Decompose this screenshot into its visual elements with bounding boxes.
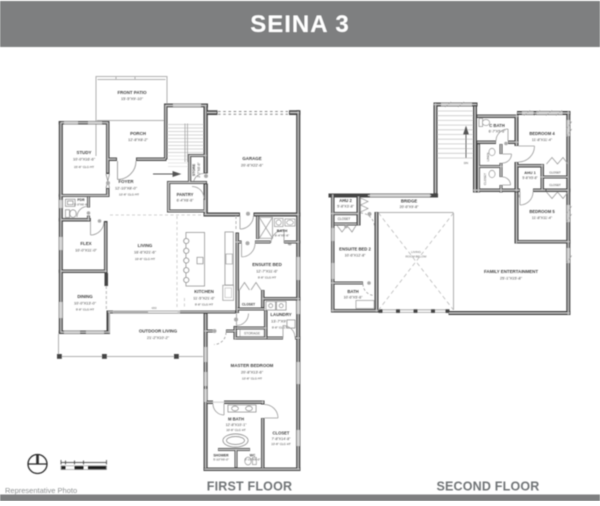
svg-text:AHU 2: AHU 2 [339, 198, 352, 203]
svg-text:19'-8" CLG HT: 19'-8" CLG HT [135, 257, 155, 261]
svg-text:25'-1"X15'-8": 25'-1"X15'-8" [500, 277, 523, 281]
svg-text:LAUNDRY: LAUNDRY [270, 312, 291, 317]
svg-text:LIVING: LIVING [138, 243, 153, 248]
svg-text:11'-8"X11'-4": 11'-8"X11'-4" [532, 138, 553, 142]
svg-text:10'-0"X13'-0": 10'-0"X13'-0" [74, 302, 97, 306]
svg-text:5'-8"X5'-8": 5'-8"X5'-8" [522, 176, 538, 180]
svg-text:7'-8"X14'-8": 7'-8"X14'-8" [272, 437, 291, 441]
svg-text:PANTRY: PANTRY [177, 192, 194, 197]
svg-text:12'-8"X8'-2": 12'-8"X8'-2" [128, 138, 148, 142]
svg-text:20'-6"X22'-6": 20'-6"X22'-6" [241, 164, 264, 168]
svg-text:ROOM BELOW: ROOM BELOW [405, 255, 426, 259]
svg-text:10'-0"X11'-0": 10'-0"X11'-0" [75, 249, 97, 253]
svg-text:DN: DN [464, 161, 468, 165]
svg-text:C BATH: C BATH [489, 123, 505, 128]
svg-text:10'-8" CLG HT: 10'-8" CLG HT [226, 428, 246, 432]
svg-text:13'-8" CLG HT: 13'-8" CLG HT [242, 377, 262, 381]
svg-text:Representative Photo: Representative Photo [5, 486, 77, 495]
svg-text:480: 480 [151, 306, 156, 310]
svg-text:DINING: DINING [77, 294, 93, 299]
svg-text:PORCH: PORCH [130, 131, 146, 136]
svg-text:12'-10"X8'-0": 12'-10"X8'-0" [115, 187, 138, 191]
svg-text:13'-8" CLG HT: 13'-8" CLG HT [271, 442, 291, 446]
svg-text:LIVING: LIVING [411, 250, 422, 254]
svg-text:ENSUITE BED: ENSUITE BED [252, 262, 282, 267]
svg-text:SEINA 3: SEINA 3 [250, 11, 349, 38]
svg-text:CLOSET: CLOSET [338, 217, 351, 221]
svg-text:20'-6"X9'-8": 20'-6"X9'-8" [400, 205, 419, 209]
svg-text:12'-8"X10'-1": 12'-8"X10'-1" [226, 423, 247, 427]
svg-text:FLEX: FLEX [80, 241, 91, 246]
svg-text:15'-8" CLG HT: 15'-8" CLG HT [74, 165, 94, 169]
svg-text:BATH: BATH [347, 289, 358, 294]
svg-text:AHU 1: AHU 1 [524, 171, 535, 175]
svg-text:SECOND FLOOR: SECOND FLOOR [436, 480, 539, 494]
svg-text:OUTDOOR LIVING: OUTDOOR LIVING [139, 329, 178, 334]
svg-text:8'-4"X5'-6": 8'-4"X5'-6" [275, 234, 289, 238]
svg-text:BEDROOM 5: BEDROOM 5 [529, 209, 555, 214]
svg-text:FIRST FLOOR: FIRST FLOOR [207, 480, 293, 494]
svg-text:ENSUITE BED 2: ENSUITE BED 2 [339, 247, 371, 252]
svg-text:KITCHEN: KITCHEN [194, 289, 214, 294]
svg-text:MASTER BEDROOM: MASTER BEDROOM [231, 363, 274, 368]
svg-text:5'-10"X6'-0": 5'-10"X6'-0" [213, 458, 229, 462]
svg-text:CLOSET: CLOSET [549, 183, 561, 187]
svg-text:10'-6"X5'-6": 10'-6"X5'-6" [344, 296, 363, 300]
svg-text:BEDROOM 4: BEDROOM 4 [529, 131, 555, 136]
svg-text:10'-0"X16'-6": 10'-0"X16'-6" [73, 158, 96, 162]
svg-text:15'-5"X9'-10": 15'-5"X9'-10" [121, 97, 144, 101]
svg-text:M BATH: M BATH [228, 417, 244, 422]
svg-text:9'-8" CLG HT: 9'-8" CLG HT [76, 308, 94, 312]
svg-text:5'-8"X3'-8": 5'-8"X3'-8" [337, 205, 354, 209]
svg-text:9'-8" CLG HT: 9'-8" CLG HT [195, 303, 213, 307]
svg-text:10'-6"X12'-8": 10'-6"X12'-8" [345, 254, 366, 258]
svg-text:16'-6"X21'-6": 16'-6"X21'-6" [134, 251, 157, 255]
svg-text:11'-8"X11'-4": 11'-8"X11'-4" [532, 216, 553, 220]
svg-text:FAMILY ENTERTAINMENT: FAMILY ENTERTAINMENT [484, 269, 538, 274]
svg-text:BATH: BATH [277, 228, 288, 233]
svg-text:CLOSET: CLOSET [273, 431, 290, 436]
svg-text:STUDY: STUDY [77, 150, 92, 155]
svg-text:12'-7"X11'-6": 12'-7"X11'-6" [256, 270, 278, 274]
svg-text:13'-8" CLG HT: 13'-8" CLG HT [119, 193, 139, 197]
svg-text:CLOSET: CLOSET [242, 303, 255, 307]
svg-text:6'-4"X6'-6": 6'-4"X6'-6" [177, 199, 194, 203]
svg-text:CLOSET: CLOSET [483, 173, 487, 185]
svg-text:11'-5"X21'-6": 11'-5"X21'-6" [193, 297, 215, 301]
svg-text:FOYER: FOYER [118, 179, 134, 184]
svg-text:FRONT PATIO: FRONT PATIO [117, 90, 147, 95]
svg-text:BRIDGE: BRIDGE [401, 199, 417, 204]
svg-text:20'-8"X13'-6": 20'-8"X13'-6" [241, 371, 264, 375]
svg-text:5'-10"X6'-0": 5'-10"X6'-0" [245, 458, 261, 462]
svg-text:CLOSET: CLOSET [549, 171, 561, 175]
svg-text:STORAGE: STORAGE [244, 332, 261, 336]
svg-text:STORE: STORE [192, 163, 196, 176]
svg-text:9'-8" CLG HT: 9'-8" CLG HT [258, 276, 276, 280]
svg-text:GARAGE: GARAGE [242, 156, 261, 161]
svg-text:2'-7"X6'-6": 2'-7"X6'-6" [197, 162, 201, 178]
svg-text:5'-0"X6'-6": 5'-0"X6'-6" [74, 203, 88, 207]
svg-text:21'-2"X10'-2": 21'-2"X10'-2" [147, 336, 170, 340]
svg-text:PDR: PDR [77, 198, 85, 202]
